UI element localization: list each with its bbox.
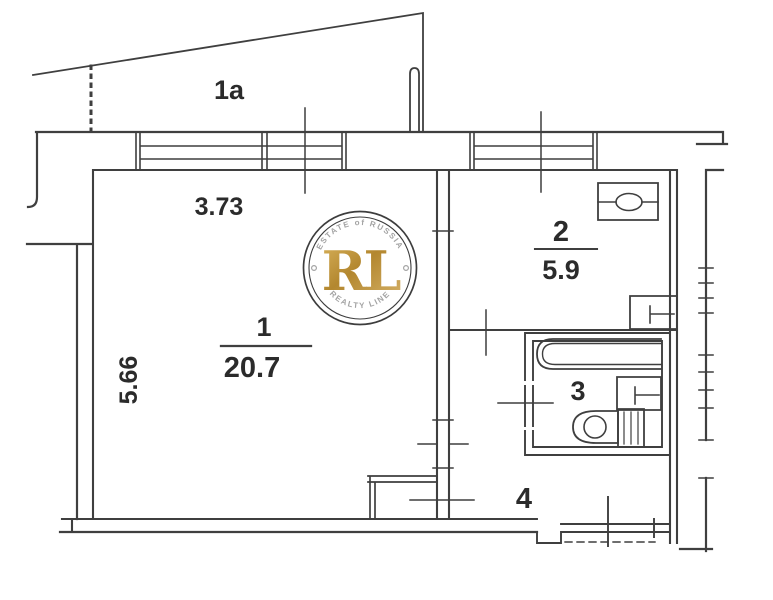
living-height-dim: 5.66: [115, 356, 143, 405]
bathtub-inner: [543, 344, 662, 365]
hallway-number: 4: [516, 483, 532, 515]
closet-walls: [368, 476, 437, 519]
floor-plan-drawing: 1a 3.73 5.66 1 20.7 2 5.9 3 4 ESTATE of …: [0, 0, 773, 600]
bathtub-icon: [537, 339, 661, 369]
toilet-drain: [584, 416, 606, 438]
toilet-tank-hatch: [624, 412, 638, 444]
balcony-label: 1a: [214, 75, 245, 105]
kitchen-fixtures: [598, 183, 677, 329]
entry-walls: [449, 497, 670, 546]
kitchen-number: 2: [553, 216, 569, 248]
toilet-icon: [573, 409, 644, 447]
windows: [136, 132, 597, 170]
balcony: [33, 13, 423, 131]
kitchen-area: 5.9: [542, 255, 580, 285]
watermark-logo: ESTATE of RUSSIA RL REALTY LINE: [304, 212, 417, 325]
bathroom-walls: [525, 333, 670, 455]
bathroom-number: 3: [570, 376, 585, 406]
sink-symbol: [635, 387, 659, 404]
living-room-number: 1: [256, 312, 271, 342]
sink-icon: [617, 377, 661, 410]
entry-area: [449, 497, 670, 546]
living-width-dim: 3.73: [195, 193, 244, 221]
stove-icon: [598, 183, 658, 220]
sink-body: [617, 377, 661, 410]
stove-burner: [616, 194, 642, 211]
floor-plan-canvas: 1a 3.73 5.66 1 20.7 2 5.9 3 4 ESTATE of …: [0, 0, 773, 600]
bathroom-fixtures: [537, 339, 661, 447]
living-room-area: 20.7: [224, 352, 280, 384]
